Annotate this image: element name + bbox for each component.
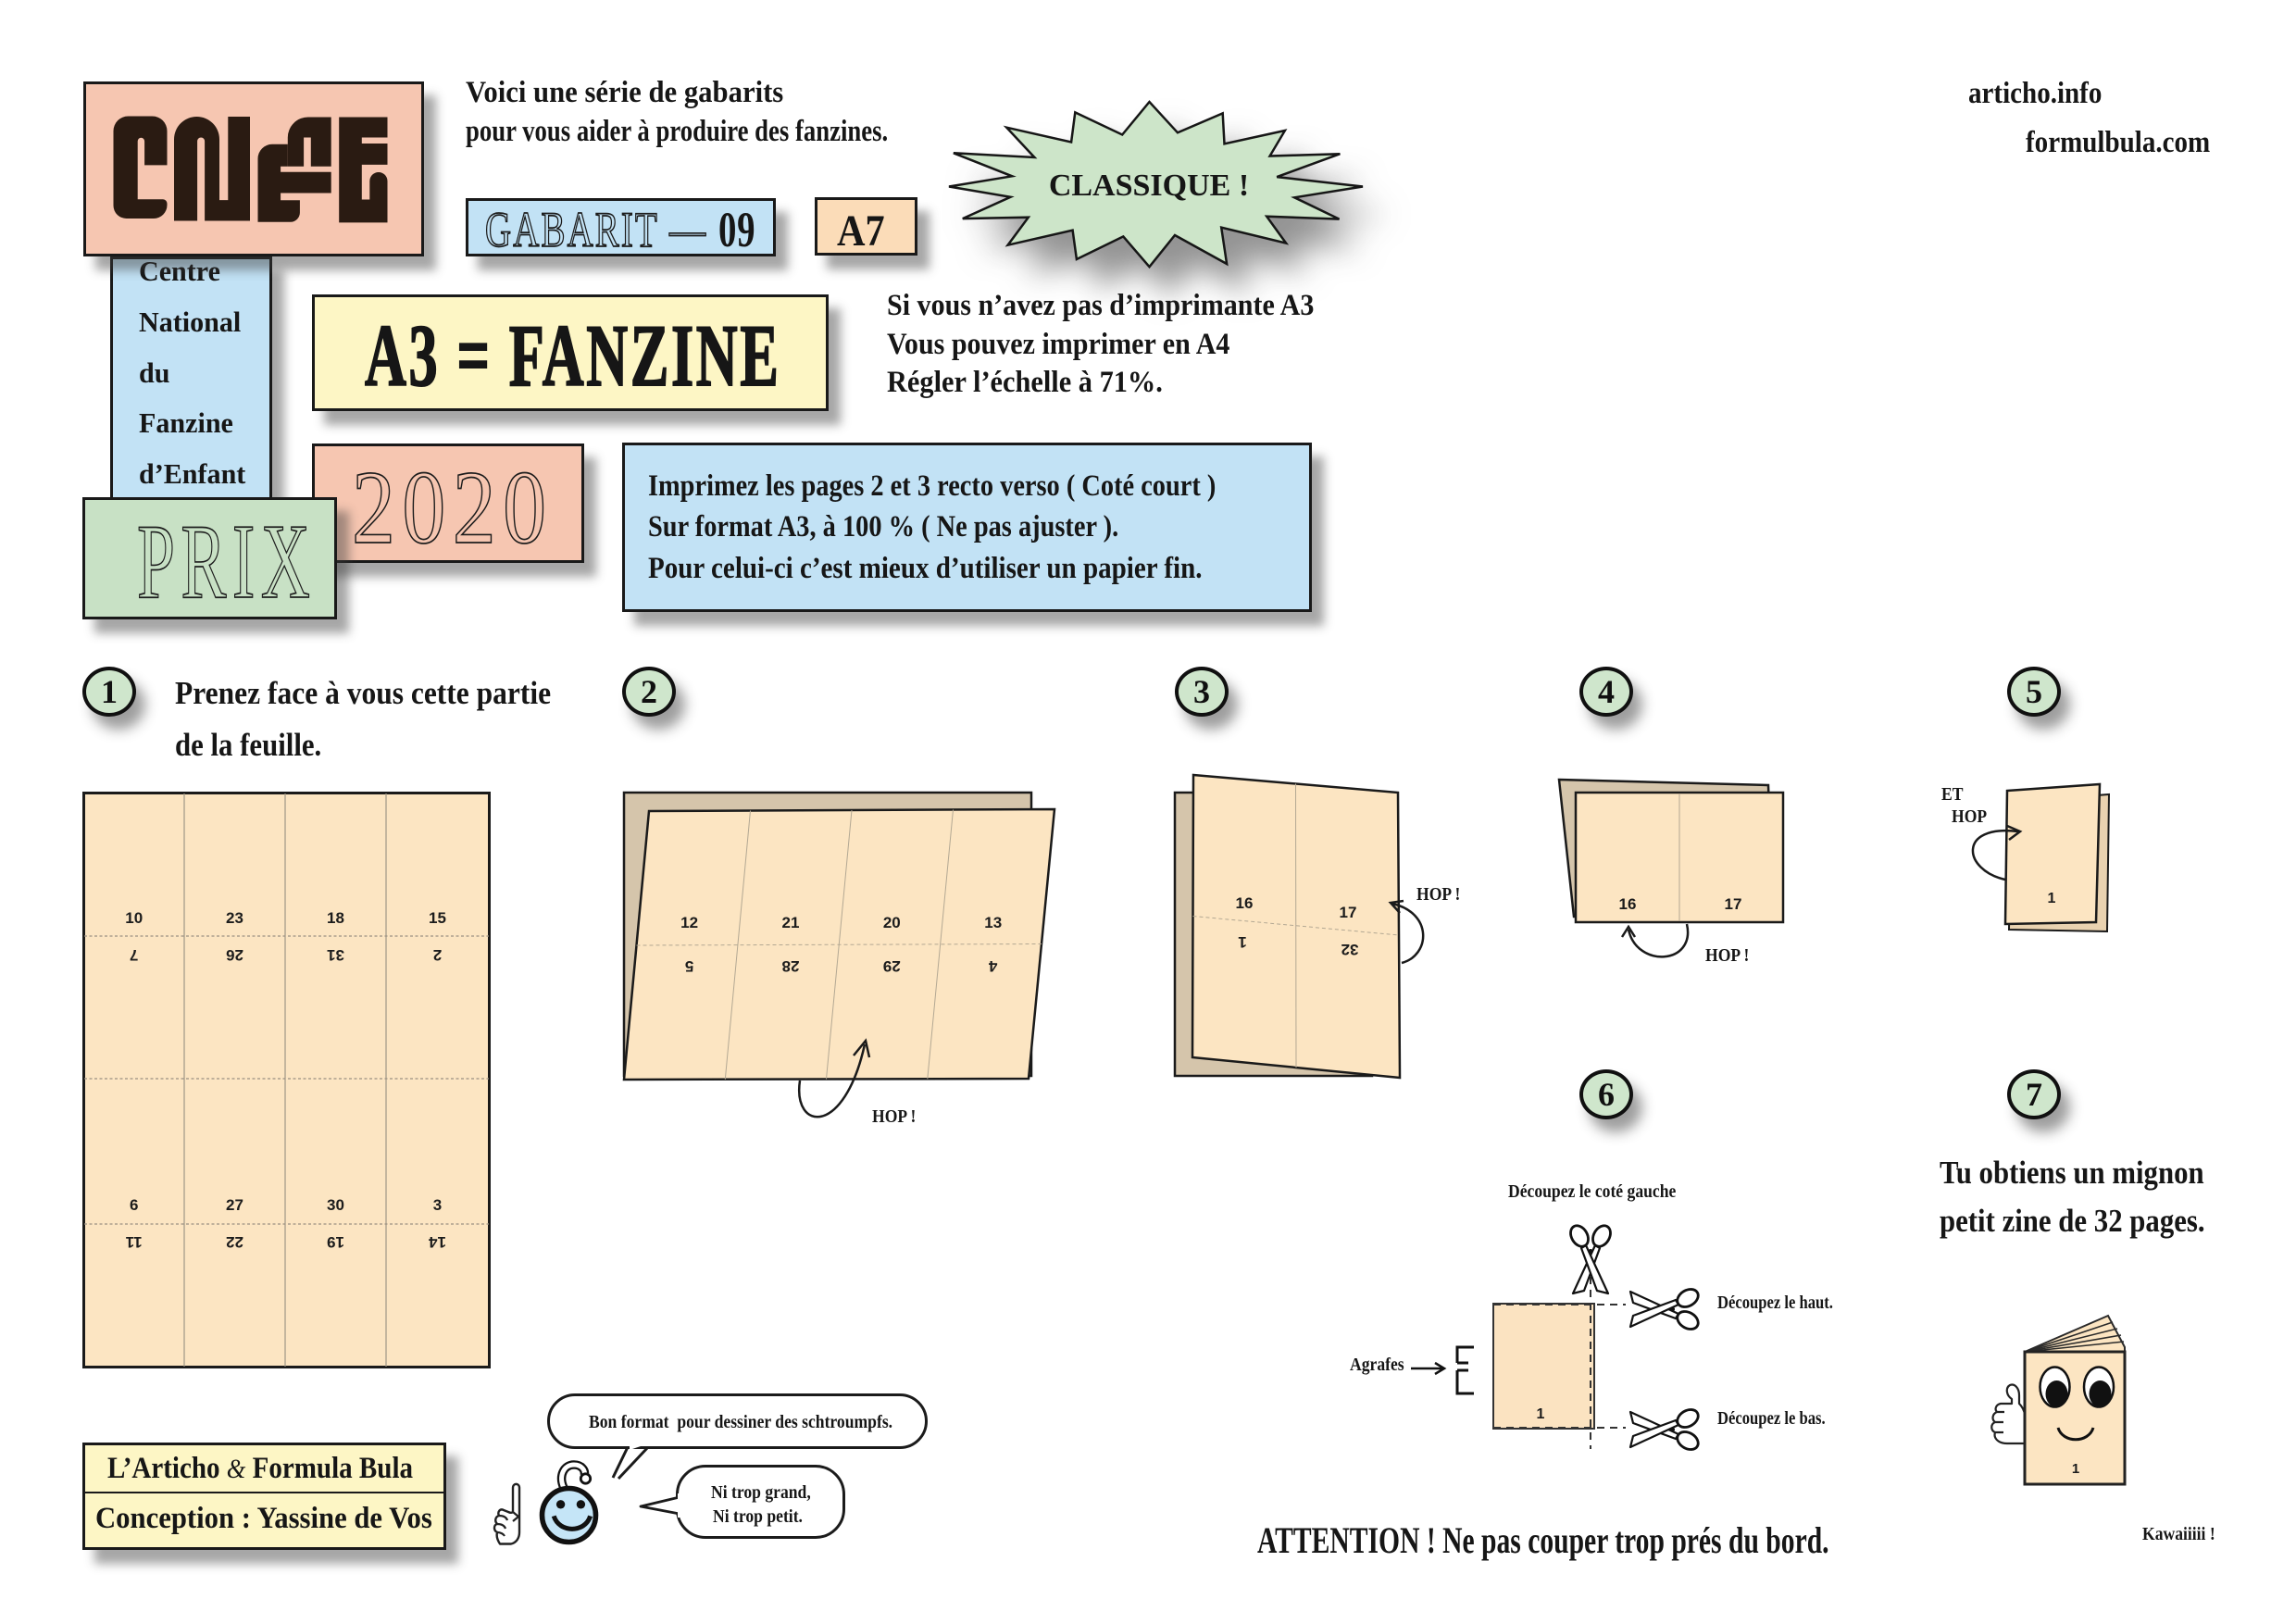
svg-text:18: 18 <box>327 909 344 927</box>
svg-text:23: 23 <box>226 909 243 927</box>
svg-text:17: 17 <box>1340 904 1357 921</box>
svg-text:19: 19 <box>327 1233 344 1251</box>
svg-text:31: 31 <box>327 946 344 964</box>
svg-text:1: 1 <box>1238 933 1246 951</box>
svg-text:11: 11 <box>126 1233 143 1251</box>
svg-text:CLASSIQUE !: CLASSIQUE ! <box>1049 169 1249 203</box>
svg-text:21: 21 <box>782 914 800 931</box>
svg-text:4: 4 <box>988 957 997 975</box>
svg-text:6: 6 <box>130 1196 138 1214</box>
svg-text:15: 15 <box>429 909 446 927</box>
svg-text:1: 1 <box>2048 891 2056 906</box>
svg-text:29: 29 <box>883 957 901 975</box>
svg-text:13: 13 <box>984 914 1002 931</box>
svg-text:26: 26 <box>226 946 243 964</box>
svg-text:2: 2 <box>433 946 442 964</box>
svg-text:16: 16 <box>1619 895 1637 913</box>
svg-text:3: 3 <box>433 1196 442 1214</box>
svg-text:14: 14 <box>429 1233 446 1251</box>
svg-text:32: 32 <box>1341 941 1359 958</box>
svg-text:22: 22 <box>226 1233 243 1251</box>
svg-text:30: 30 <box>327 1196 344 1214</box>
svg-text:28: 28 <box>782 957 800 975</box>
svg-text:16: 16 <box>1236 894 1254 912</box>
svg-text:1: 1 <box>2072 1461 2079 1477</box>
svg-text:17: 17 <box>1725 895 1742 913</box>
svg-text:12: 12 <box>680 914 698 931</box>
svg-text:1: 1 <box>1537 1406 1545 1422</box>
svg-text:27: 27 <box>226 1196 243 1214</box>
svg-text:10: 10 <box>125 909 143 927</box>
svg-text:20: 20 <box>883 914 901 931</box>
svg-text:5: 5 <box>685 957 693 975</box>
svg-text:7: 7 <box>130 946 138 964</box>
